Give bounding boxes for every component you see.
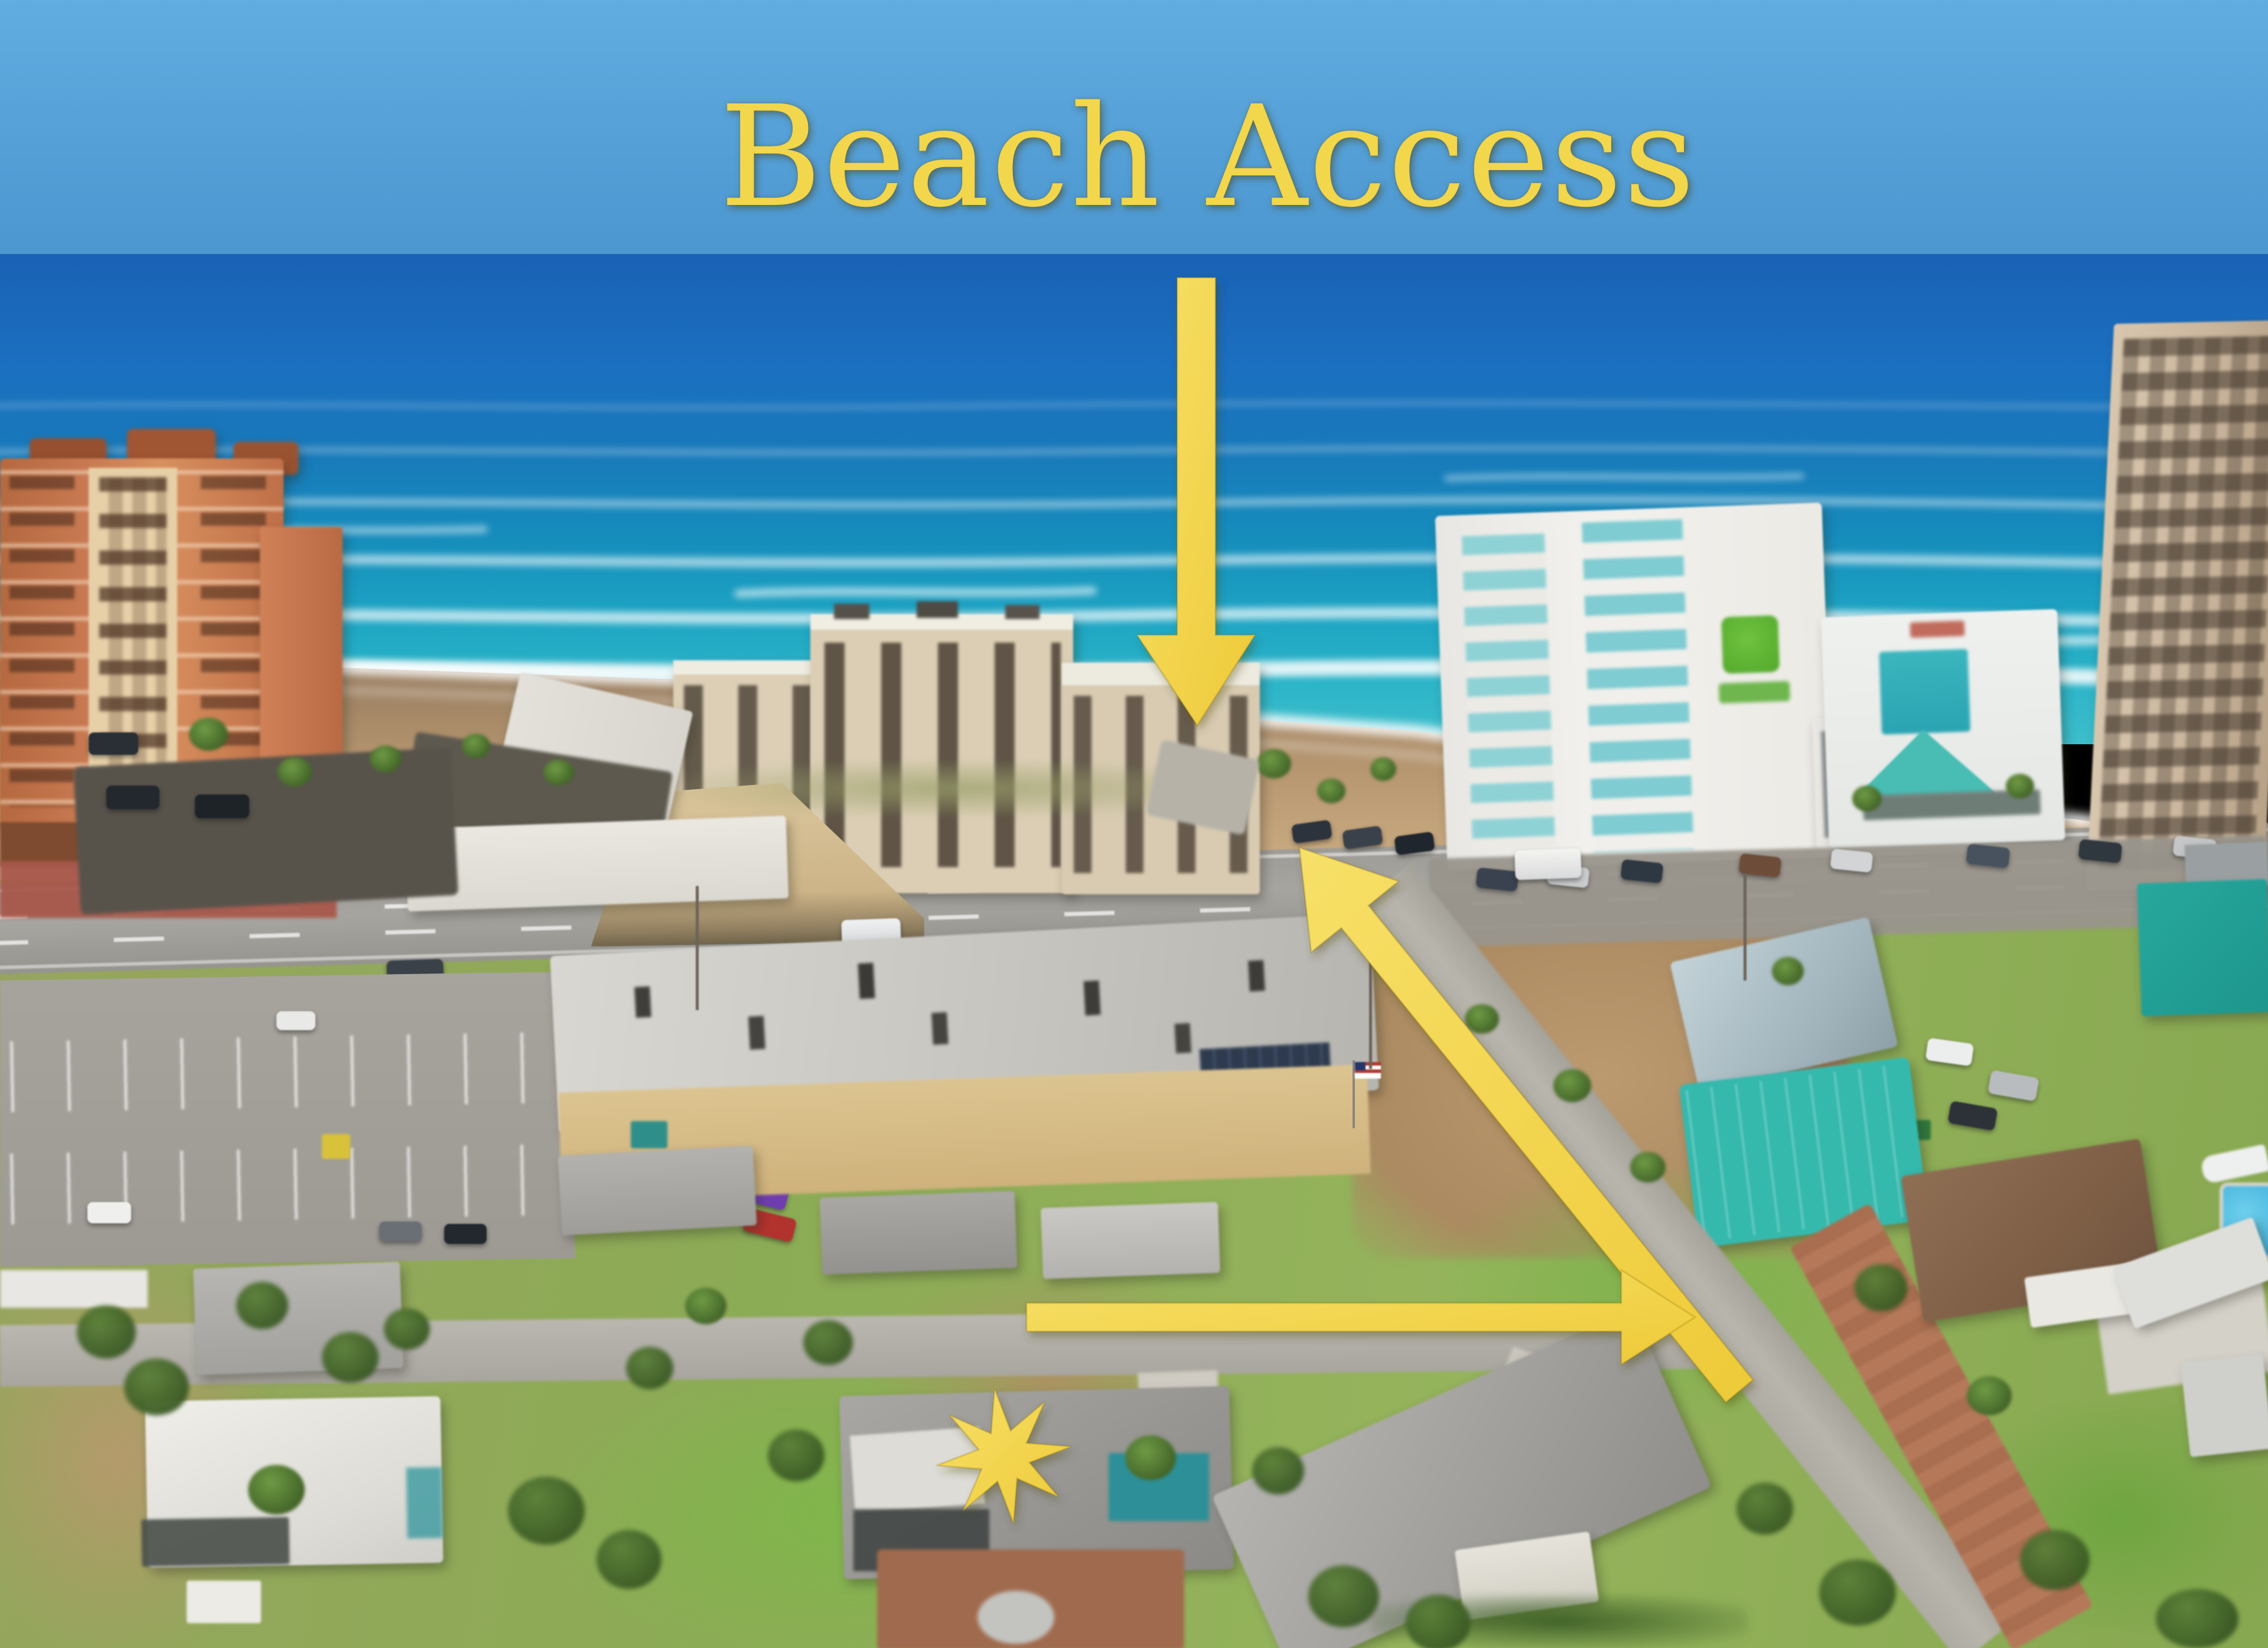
- subject-property-star: [937, 1389, 1071, 1523]
- neighborhood-street-right-arrow: [1027, 1270, 1695, 1364]
- annotation-arrows: [0, 0, 2268, 1648]
- aerial-photo-scene: Beach Access: [0, 0, 2268, 1648]
- beach-access-down-arrow: [1137, 278, 1255, 725]
